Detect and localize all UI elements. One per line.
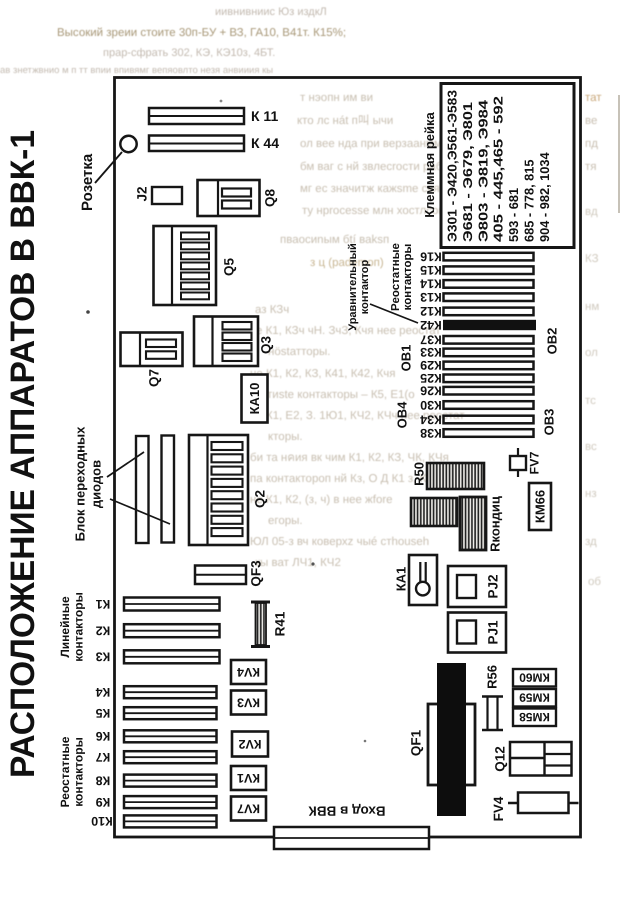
svg-text:К5: К5 [96, 706, 111, 720]
svg-text:Rкондиц: Rкондиц [487, 496, 502, 552]
svg-text:ОВ1: ОВ1 [398, 345, 413, 372]
svg-text:КV1: КV1 [237, 771, 260, 785]
svg-text:об: об [588, 576, 601, 588]
svg-text:тс: тс [585, 395, 596, 407]
svg-text:ол: ол [585, 347, 598, 359]
svg-text:ве К1, КЗч чН. ЗчЗ, Кчя нее: ве К1, КЗч чН. ЗчЗ, Кчя нее реостат [250, 325, 441, 337]
svg-text:К10: К10 [91, 814, 113, 828]
svg-text:К 44: К 44 [251, 135, 279, 151]
svg-text:Q12: Q12 [493, 746, 508, 772]
svg-text:КМ60: КМ60 [519, 671, 550, 685]
svg-text:не К1, К2, КЗ, К41, К42, Кчя: не К1, К2, КЗ, К41, К42, Кчя [250, 368, 396, 380]
svg-text:Линейные: Линейные [58, 596, 72, 658]
svg-text:Реостатные: Реостатные [390, 243, 402, 311]
svg-text:ОВ2: ОВ2 [544, 328, 559, 355]
svg-text:FV7: FV7 [527, 451, 541, 474]
svg-text:контакторы: контакторы [72, 592, 86, 662]
svg-text:кы ват ЛЧ1, КЧ2: кы ват ЛЧ1, КЧ2 [255, 557, 341, 569]
svg-text:КV2: КV2 [238, 737, 261, 751]
svg-text:К15: К15 [420, 263, 442, 277]
svg-text:РАСПОЛОЖЕНИЕ АППАРАТОВ В ВВК-1: РАСПОЛОЖЕНИЕ АППАРАТОВ В ВВК-1 [4, 130, 42, 778]
svg-text:R41: R41 [273, 611, 288, 636]
svg-text:К12: К12 [420, 304, 442, 318]
svg-text:593 - 681: 593 - 681 [506, 188, 521, 242]
svg-text:ОВ4: ОВ4 [394, 401, 409, 429]
svg-text:405 - 445,465 - 592: 405 - 445,465 - 592 [491, 96, 506, 242]
svg-text:К37: К37 [420, 333, 442, 347]
svg-text:КV3: КV3 [237, 695, 260, 709]
svg-text:прар-сфрать 302, КЭ, КЭ10з, 4: прар-сфрать 302, КЭ, КЭ10з, 4БТ. [103, 47, 275, 59]
svg-text:вд: вд [585, 206, 598, 218]
svg-text:Э681 - Э679, Э801: Э681 - Э679, Э801 [460, 102, 475, 242]
svg-text:К8: К8 [96, 773, 111, 787]
svg-text:нз: нз [585, 488, 597, 500]
svg-text:КV7: КV7 [237, 801, 260, 815]
svg-text:т нэопн им ви: т нэопн им ви [300, 92, 373, 104]
svg-text:Розетка: Розетка [79, 153, 96, 211]
svg-text:QF1: QF1 [409, 729, 424, 756]
svg-text:R56: R56 [484, 665, 499, 689]
svg-text:Э301 - Э420,Э561-Э583: Э301 - Э420,Э561-Э583 [445, 90, 460, 242]
svg-text:Q7: Q7 [147, 369, 162, 387]
svg-text:контакторы: контакторы [72, 737, 86, 807]
svg-text:QF3: QF3 [249, 560, 264, 587]
svg-text:вс: вс [585, 441, 597, 453]
svg-text:аз КЗч: аз КЗч [255, 304, 289, 316]
svg-text:пд: пд [585, 138, 598, 150]
svg-text:Блок переходных: Блок переходных [72, 426, 87, 541]
svg-text:К33: К33 [420, 345, 442, 359]
svg-text:Q8: Q8 [263, 189, 278, 208]
svg-text:нöstатторы.: нöstатторы. [268, 346, 331, 358]
svg-text:КМ66: КМ66 [532, 490, 547, 523]
svg-text:К30: К30 [420, 398, 442, 412]
svg-text:Q5: Q5 [222, 258, 237, 277]
svg-text:Высокий зреии стоите 30п-БУ: Высокий зреии стоите 30п-БУ + ВЗ, ГА10, … [57, 27, 346, 39]
svg-text:ав знетжвнио м п тт впии: ав знетжвнио м п тт впии впивямг вепяовл… [0, 65, 273, 76]
svg-text:ве: ве [585, 115, 597, 127]
svg-text:К6: К6 [96, 729, 111, 743]
svg-text:К2: К2 [96, 623, 111, 637]
svg-text:К29: К29 [420, 358, 442, 372]
svg-text:PJ1: PJ1 [486, 620, 501, 645]
svg-text:R50: R50 [411, 462, 426, 486]
svg-text:КV4: КV4 [237, 665, 260, 679]
svg-text:К7: К7 [96, 750, 111, 764]
svg-text:К38: К38 [420, 426, 442, 440]
svg-text:Q3: Q3 [259, 336, 274, 355]
svg-text:J2: J2 [135, 186, 150, 201]
svg-text:Вход в ВВК: Вход в ВВК [308, 803, 386, 818]
svg-text:КА10: КА10 [247, 383, 262, 415]
svg-text:диодов: диодов [88, 460, 103, 508]
svg-text:Э803 - Э819, Э984: Э803 - Э819, Э984 [475, 99, 490, 242]
svg-text:иивнивниис Юз издкЛ: иивнивниис Юз издкЛ [215, 6, 327, 18]
svg-text:685 - 778, 815: 685 - 778, 815 [522, 159, 537, 242]
svg-text:контактор: контактор [359, 260, 371, 315]
svg-text:пваосиnым бtí ваksп: пваосиnым бtí ваksп [280, 234, 389, 246]
svg-text:К3: К3 [96, 650, 111, 664]
svg-text:Клеммная рейка: Клеммная рейка [422, 111, 437, 217]
svg-text:К16: К16 [420, 249, 442, 263]
svg-text:тя: тя [585, 161, 597, 173]
svg-text:тат: тат [585, 92, 602, 104]
svg-text:К13: К13 [420, 290, 442, 304]
svg-text:К9: К9 [96, 795, 111, 809]
svg-text:не К1, К2, (з, ч) в нее жforе: не К1, К2, (з, ч) в нее жforе [250, 494, 393, 506]
svg-text:ОВ3: ОВ3 [541, 409, 556, 436]
svg-text:контакторы: контакторы [402, 243, 414, 310]
svg-text:К26: К26 [420, 383, 442, 397]
svg-text:PJ2: PJ2 [486, 574, 501, 598]
svg-text:КА1: КА1 [393, 567, 408, 592]
svg-text:статиstе контакторы – К5, Е1(о: статиstе контакторы – К5, Е1(о [250, 389, 415, 401]
svg-text:К14: К14 [420, 277, 442, 291]
svg-text:Реостатные: Реостатные [58, 736, 72, 807]
svg-text:кторы.: кторы. [268, 431, 303, 443]
svg-text:нм: нм [585, 301, 599, 313]
svg-text:FV4: FV4 [491, 796, 506, 821]
svg-text:904 - 982, 1034: 904 - 982, 1034 [537, 151, 552, 242]
svg-text:К4: К4 [96, 685, 111, 699]
svg-text:К 11: К 11 [251, 108, 278, 124]
svg-text:зд: зд [585, 536, 597, 548]
svg-text:кто лс нát п叫 ычи: кто лс нát п叫 ычи [297, 114, 393, 127]
svg-text:К25: К25 [420, 371, 442, 385]
svg-text:К42: К42 [420, 318, 442, 332]
svg-text:КМ59: КМ59 [519, 691, 550, 705]
svg-text:К34: К34 [420, 412, 442, 426]
svg-text:К1: К1 [96, 597, 111, 611]
svg-text:Q2: Q2 [253, 490, 268, 508]
svg-text:Уравнительный: Уравнительный [347, 243, 359, 330]
svg-text:егоры.: егоры. [268, 515, 303, 527]
svg-text:КЗ: КЗ [585, 253, 599, 265]
svg-text:КМ58: КМ58 [519, 710, 550, 724]
svg-text:ЮЛ 05-з вч коверхz чыé ст: ЮЛ 05-з вч коверхz чыé стhouseh [250, 536, 429, 548]
